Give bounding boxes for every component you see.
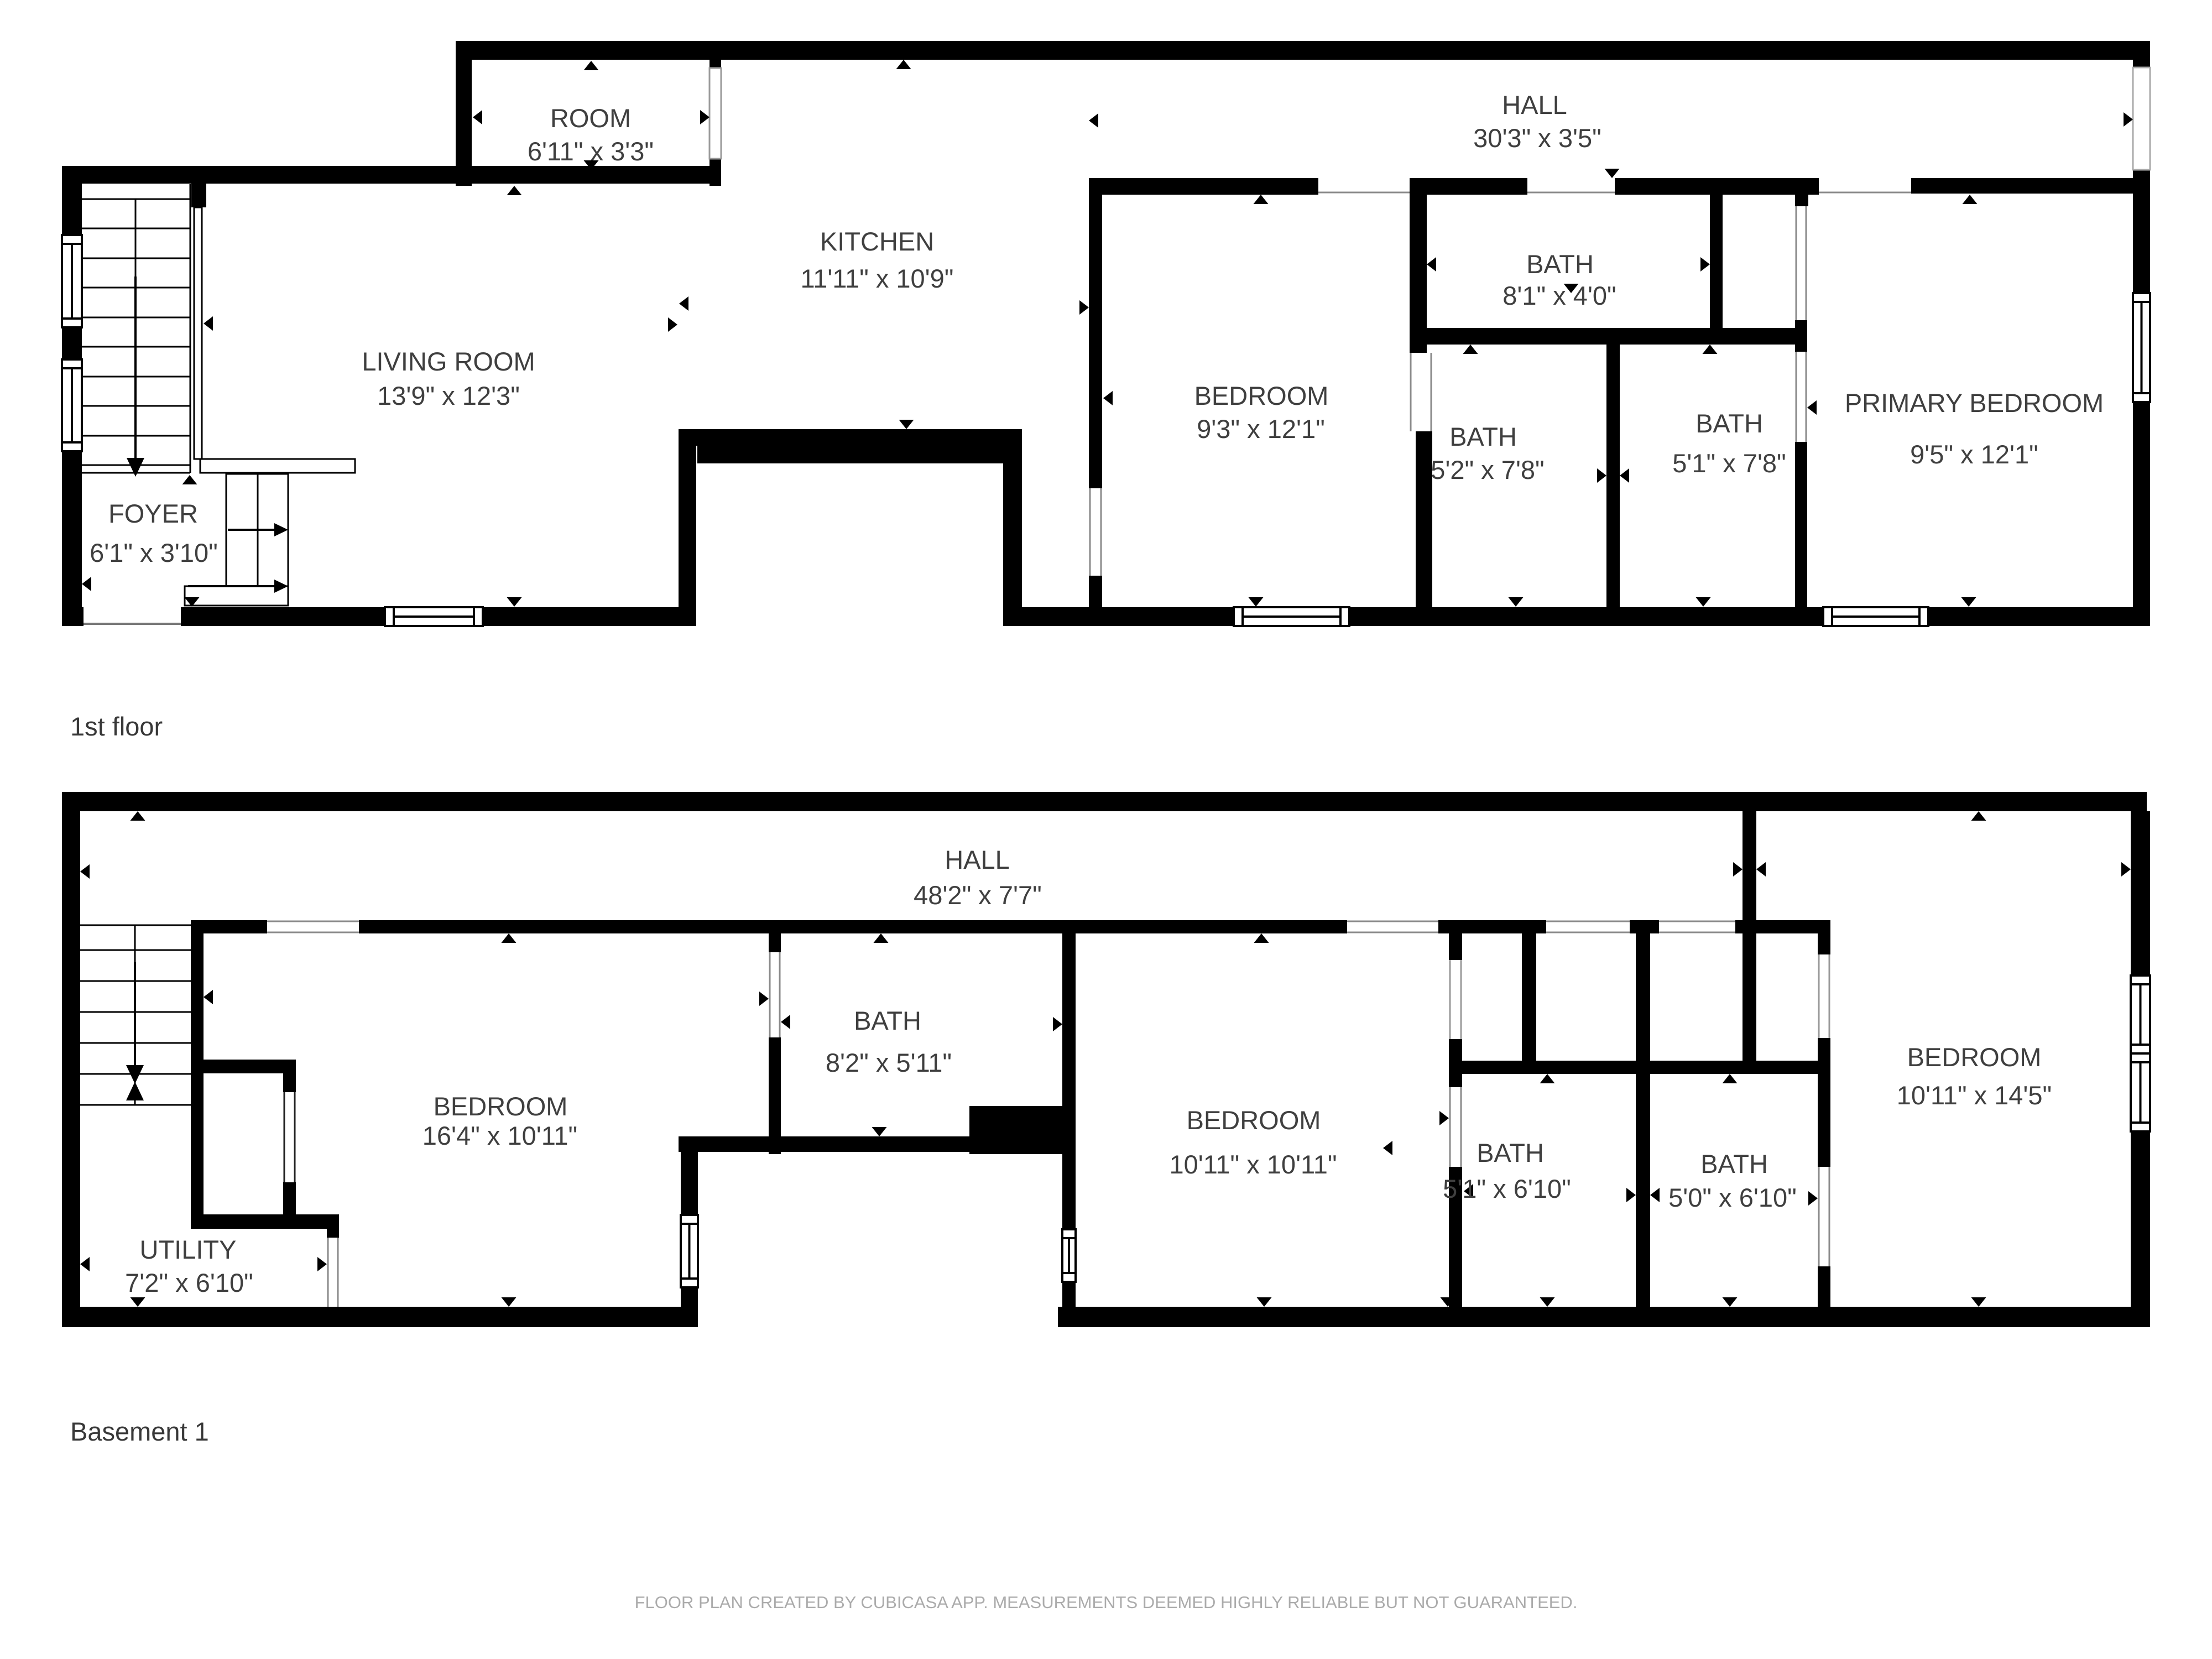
svg-text:16'4" x 10'11": 16'4" x 10'11" bbox=[422, 1121, 577, 1150]
svg-text:HALL: HALL bbox=[945, 845, 1010, 874]
svg-text:BEDROOM: BEDROOM bbox=[1907, 1042, 2042, 1072]
svg-text:KITCHEN: KITCHEN bbox=[820, 227, 934, 256]
svg-text:HALL: HALL bbox=[1502, 90, 1567, 119]
svg-text:BATH: BATH bbox=[854, 1006, 921, 1035]
svg-text:10'11" x 14'5": 10'11" x 14'5" bbox=[1897, 1081, 2052, 1110]
svg-text:UTILITY: UTILITY bbox=[140, 1235, 237, 1264]
svg-text:6'11" x 3'3": 6'11" x 3'3" bbox=[528, 137, 654, 166]
svg-text:BEDROOM: BEDROOM bbox=[434, 1092, 568, 1121]
svg-text:9'3" x 12'1": 9'3" x 12'1" bbox=[1197, 414, 1325, 444]
svg-text:FOYER: FOYER bbox=[108, 499, 198, 528]
svg-text:BATH: BATH bbox=[1526, 249, 1594, 279]
svg-text:6'1" x 3'10": 6'1" x 3'10" bbox=[90, 538, 218, 567]
svg-text:PRIMARY BEDROOM: PRIMARY BEDROOM bbox=[1845, 388, 2104, 418]
svg-text:10'11" x 10'11": 10'11" x 10'11" bbox=[1169, 1150, 1337, 1179]
svg-text:BATH: BATH bbox=[1449, 422, 1517, 451]
svg-text:8'1" x 4'0": 8'1" x 4'0" bbox=[1503, 281, 1616, 310]
svg-text:5'2" x 7'8": 5'2" x 7'8" bbox=[1431, 455, 1545, 484]
svg-text:7'2" x 6'10": 7'2" x 6'10" bbox=[125, 1268, 253, 1297]
svg-text:8'2" x 5'11": 8'2" x 5'11" bbox=[826, 1048, 952, 1077]
svg-text:BATH: BATH bbox=[1477, 1138, 1544, 1167]
svg-text:30'3" x 3'5": 30'3" x 3'5" bbox=[1473, 123, 1601, 153]
svg-text:48'2" x 7'7": 48'2" x 7'7" bbox=[914, 880, 1042, 910]
svg-text:LIVING ROOM: LIVING ROOM bbox=[362, 347, 535, 376]
svg-text:ROOM: ROOM bbox=[550, 103, 631, 133]
svg-text:BEDROOM: BEDROOM bbox=[1187, 1105, 1321, 1135]
svg-text:5'1" x 7'8": 5'1" x 7'8" bbox=[1672, 448, 1786, 478]
svg-text:BATH: BATH bbox=[1695, 409, 1763, 438]
svg-text:13'9" x 12'3": 13'9" x 12'3" bbox=[377, 381, 520, 410]
svg-text:5'1" x 6'10": 5'1" x 6'10" bbox=[1443, 1174, 1571, 1203]
svg-text:BATH: BATH bbox=[1700, 1149, 1768, 1178]
svg-text:9'5" x 12'1": 9'5" x 12'1" bbox=[1910, 440, 2038, 469]
svg-text:5'0" x 6'10": 5'0" x 6'10" bbox=[1668, 1183, 1797, 1212]
svg-text:Basement 1: Basement 1 bbox=[70, 1417, 209, 1446]
svg-text:BEDROOM: BEDROOM bbox=[1194, 381, 1329, 410]
svg-text:11'11" x 10'9": 11'11" x 10'9" bbox=[801, 264, 954, 293]
svg-text:FLOOR PLAN CREATED BY CUBICASA: FLOOR PLAN CREATED BY CUBICASA APP. MEAS… bbox=[635, 1593, 1578, 1612]
svg-text:1st floor: 1st floor bbox=[70, 712, 163, 741]
